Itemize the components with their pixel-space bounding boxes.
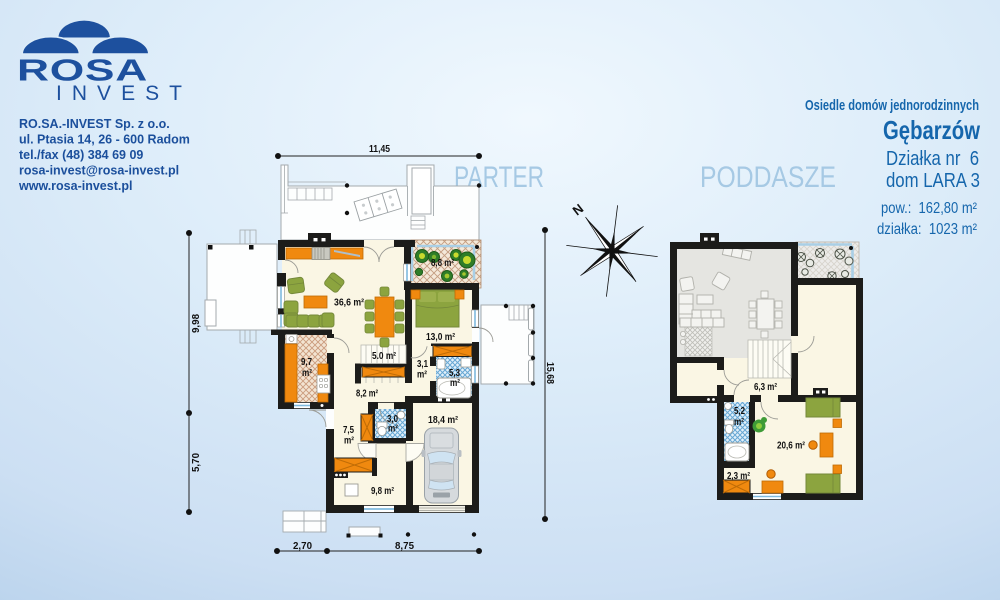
svg-text:13,0 m²: 13,0 m² xyxy=(426,332,456,343)
svg-text:5.0 m²: 5.0 m² xyxy=(372,351,397,362)
svg-text:2,70: 2,70 xyxy=(293,541,312,552)
svg-text:działka: 1023 m²: działka: 1023 m² xyxy=(877,221,977,238)
svg-text:8,75: 8,75 xyxy=(395,541,414,552)
svg-text:6,3 m²: 6,3 m² xyxy=(754,382,778,393)
svg-text:ul. Ptasia 14, 26 - 600 Radom: ul. Ptasia 14, 26 - 600 Radom xyxy=(19,133,190,147)
svg-text:m²: m² xyxy=(344,436,355,447)
svg-text:5,70: 5,70 xyxy=(191,453,202,472)
svg-text:18,4 m²: 18,4 m² xyxy=(428,415,459,426)
svg-text:8,8 m²: 8,8 m² xyxy=(431,258,455,269)
svg-text:Osiedle domów jednorodzinnych: Osiedle domów jednorodzinnych xyxy=(805,97,979,114)
svg-text:rosa-invest@rosa-invest.pl: rosa-invest@rosa-invest.pl xyxy=(19,164,179,178)
svg-text:Gębarzów: Gębarzów xyxy=(883,115,981,145)
svg-text:PODDASZE: PODDASZE xyxy=(700,161,836,194)
svg-text:5,2: 5,2 xyxy=(734,406,745,417)
svg-text:2,3 m²: 2,3 m² xyxy=(727,471,751,482)
svg-text:m²: m² xyxy=(734,417,745,428)
svg-text:11,45: 11,45 xyxy=(369,144,390,155)
svg-text:www.rosa-invest.pl: www.rosa-invest.pl xyxy=(18,179,132,193)
svg-text:tel./fax (48) 384 69 09: tel./fax (48) 384 69 09 xyxy=(19,148,143,162)
svg-text:m²: m² xyxy=(417,370,428,381)
svg-text:20,6 m²: 20,6 m² xyxy=(777,441,806,452)
svg-text:Działka nr 6: Działka nr 6 xyxy=(886,147,979,170)
svg-text:8,2 m²: 8,2 m² xyxy=(356,389,379,400)
svg-text:9,7: 9,7 xyxy=(301,357,312,368)
svg-text:36,6 m²: 36,6 m² xyxy=(334,298,365,309)
svg-text:3,1: 3,1 xyxy=(417,359,428,370)
svg-text:9,8 m²: 9,8 m² xyxy=(371,486,395,497)
svg-text:dom LARA 3: dom LARA 3 xyxy=(886,169,980,192)
svg-text:m²: m² xyxy=(302,368,313,379)
svg-text:m²: m² xyxy=(450,378,461,389)
svg-text:RO.SA.-INVEST Sp. z o.o.: RO.SA.-INVEST Sp. z o.o. xyxy=(19,117,170,131)
svg-text:7,5: 7,5 xyxy=(343,425,354,436)
svg-text:15,68: 15,68 xyxy=(544,362,555,384)
svg-text:9,98: 9,98 xyxy=(191,314,202,333)
svg-text:m²: m² xyxy=(388,424,399,435)
svg-text:pow.: 162,80 m²: pow.: 162,80 m² xyxy=(881,200,977,217)
